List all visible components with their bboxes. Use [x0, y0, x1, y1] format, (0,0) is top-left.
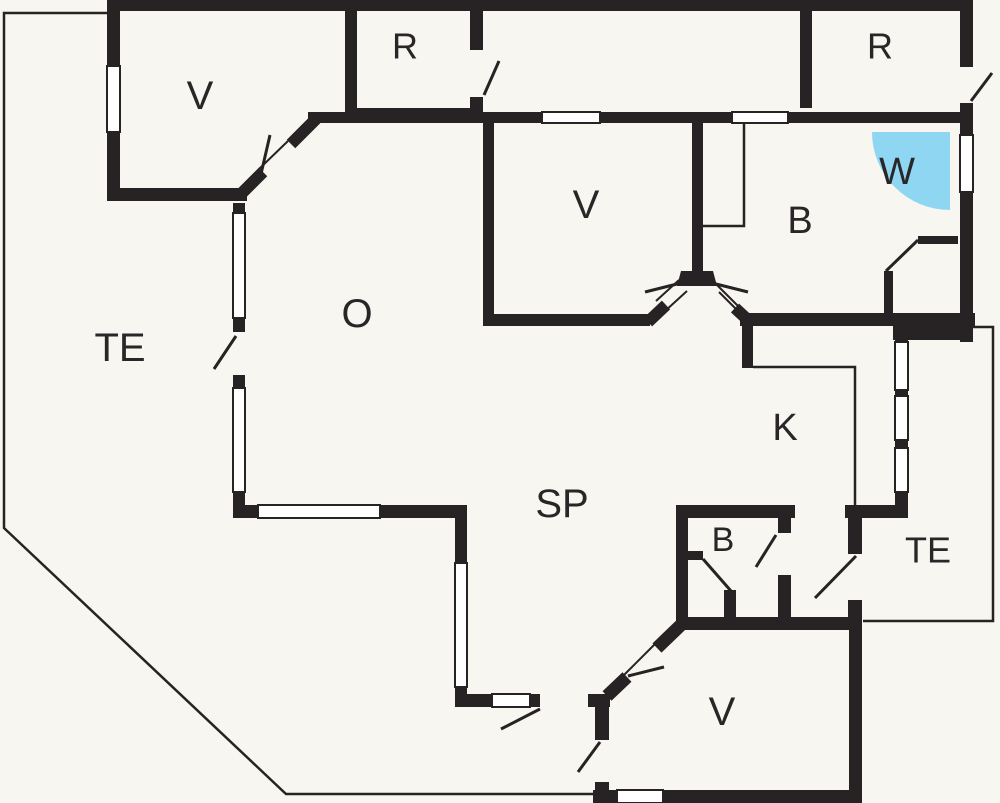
door-leaves	[214, 61, 992, 772]
door-leaf-terrace-right	[815, 556, 856, 598]
room-label-shower-corner: W	[879, 151, 915, 193]
kitchen-counter-line	[753, 367, 855, 505]
wardrobe-line	[703, 123, 744, 226]
terrace-right-outline	[863, 327, 993, 621]
door-leaf-living-south	[501, 709, 540, 729]
door-leaf-shower-small	[703, 559, 731, 591]
room-label-bathroom-small: B	[712, 521, 735, 559]
room-label-kitchen: K	[772, 407, 797, 449]
floorplan-page: V R R TE O V B W K SP B TE V	[0, 0, 1000, 803]
door-leaf-bathroom-corner	[886, 240, 918, 271]
door-leaf-storage-right	[971, 73, 992, 101]
room-label-living-area: SP	[535, 482, 588, 526]
diagonal-walls	[240, 119, 749, 696]
door-leaf-terrace-left	[214, 336, 236, 369]
room-label-bedroom-bottom: V	[709, 690, 736, 734]
room-label-terrace-right: TE	[905, 530, 951, 571]
door-leaf-storage-left	[484, 61, 499, 95]
room-label-terrace-left: TE	[94, 326, 145, 370]
room-label-storage-top-left: R	[392, 26, 418, 67]
door-leaf-bedroom-top-left	[261, 135, 270, 174]
room-label-bedroom-top-left: V	[187, 74, 214, 118]
room-label-bedroom-center: V	[573, 183, 600, 227]
floorplan-drawing: V R R TE O V B W K SP B TE V	[0, 0, 1000, 803]
door-leaf-bedroom-bottom-west	[578, 742, 600, 772]
room-label-bathroom-right: B	[787, 200, 812, 242]
room-label-main-room: O	[341, 292, 372, 336]
terrace-outlines	[4, 13, 993, 794]
windows	[107, 66, 973, 803]
door-leaf-hall-left	[645, 283, 681, 292]
door-leaf-bedroom-bottom-diag	[628, 667, 664, 676]
door-frame-edges	[259, 141, 744, 675]
room-label-storage-top-right: R	[867, 26, 893, 67]
door-leaf-hall-right	[712, 283, 748, 292]
door-leaf-bathroom-small	[756, 535, 776, 567]
